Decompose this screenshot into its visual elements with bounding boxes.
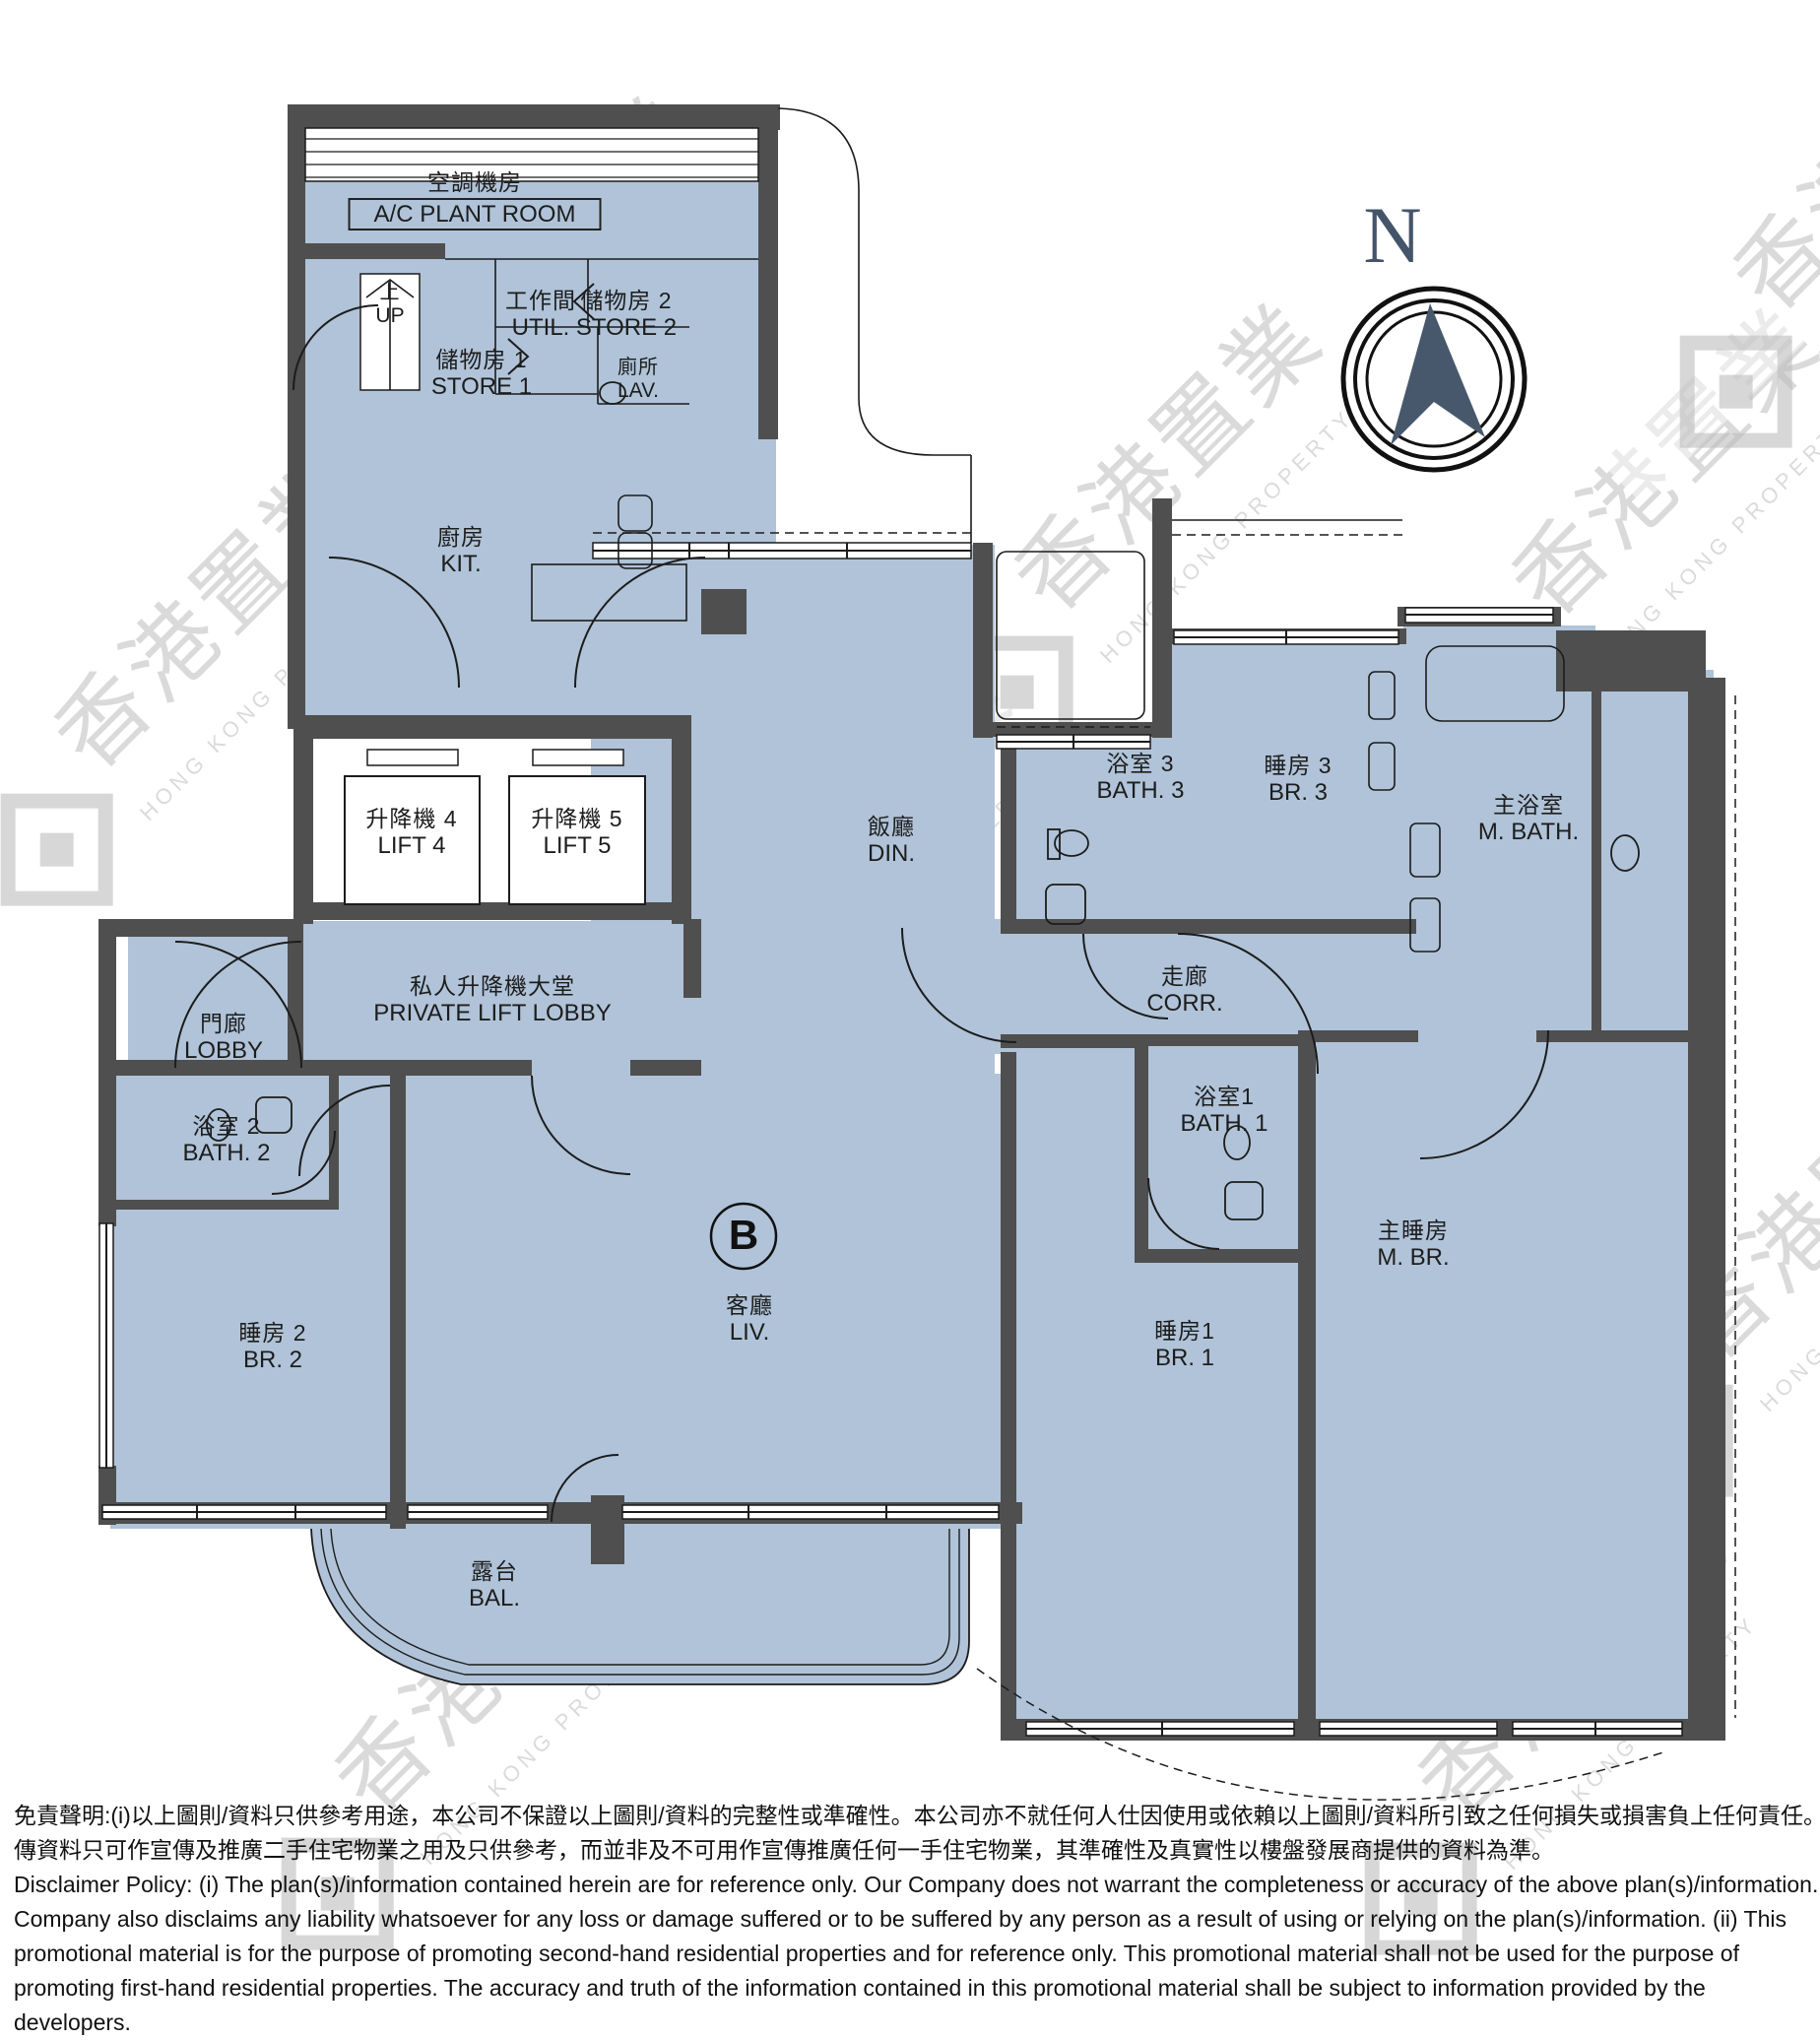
room-label-mbath: 主浴室M. BATH. <box>1478 792 1579 845</box>
room-label-kitchen: 廚房KIT. <box>437 524 485 577</box>
room-label-br3: 睡房 3BR. 3 <box>1264 753 1332 806</box>
disclaimer-line: Company also disclaims any liability wha… <box>14 1902 1808 1937</box>
room-label-store1: 儲物房 1STORE 1 <box>431 347 532 400</box>
room-label-lobby: 門廊LOBBY <box>184 1011 263 1064</box>
room-label-corridor: 走廊CORR. <box>1146 963 1222 1017</box>
room-label-store2: 儲物房 2STORE 2 <box>576 288 677 341</box>
room-label-lift4: 升降機 4LIFT 4 <box>365 806 457 859</box>
disclaimer-line: 傳資料只可作宣傳及推廣二手住宅物業之用及只供參考，而並非及不可用作宣傳推廣任何一… <box>14 1833 1808 1868</box>
room-label-dining: 飯廳DIN. <box>868 814 915 867</box>
room-label-balcony: 露台BAL. <box>469 1558 520 1612</box>
compass-icon <box>1343 289 1525 470</box>
room-label-lav: 廁所LAV. <box>617 357 659 402</box>
room-label-private-lift-lobby: 私人升降機大堂PRIVATE LIFT LOBBY <box>373 973 611 1026</box>
room-label-lift5: 升降機 5LIFT 5 <box>531 806 622 859</box>
room-label-br1: 睡房1BR. 1 <box>1154 1318 1215 1371</box>
room-label-br2: 睡房 2BR. 2 <box>238 1320 306 1373</box>
floorplan-page: { "unit": "B", "compass_n": "N", "waterm… <box>0 0 1820 2018</box>
room-label-bath2: 浴室 2BATH. 2 <box>183 1113 271 1166</box>
disclaimer-line: promoting first-hand residential propert… <box>14 1971 1808 2006</box>
room-label-up: 上UP <box>375 282 404 327</box>
disclaimer-line: Disclaimer Policy: (i) The plan(s)/infor… <box>14 1868 1808 1902</box>
disclaimer-line: promotional material is for the purpose … <box>14 1937 1808 1971</box>
unit-label: B <box>729 1212 758 1259</box>
room-label-ac-plant: 空調機房A/C PLANT ROOM <box>349 169 602 230</box>
disclaimer-line: developers. <box>14 2006 1808 2040</box>
disclaimer-line: 免責聲明:(i)以上圖則/資料只供參考用途，本公司不保證以上圖則/資料的完整性或… <box>14 1799 1808 1833</box>
room-label-util: 工作間UTIL. <box>505 288 576 341</box>
disclaimer-block: 免責聲明:(i)以上圖則/資料只供參考用途，本公司不保證以上圖則/資料的完整性或… <box>14 1799 1808 2040</box>
room-label-bath1: 浴室1BATH. 1 <box>1181 1084 1268 1137</box>
compass-north-label: N <box>1363 189 1421 282</box>
room-label-bath3: 浴室 3BATH. 3 <box>1097 751 1185 804</box>
room-label-living: 客廳LIV. <box>726 1292 773 1346</box>
room-label-mbr: 主睡房M. BR. <box>1377 1217 1449 1271</box>
floorplan-drawing: 香港置業 HONG KONG PROPERTY <box>0 0 1820 2018</box>
